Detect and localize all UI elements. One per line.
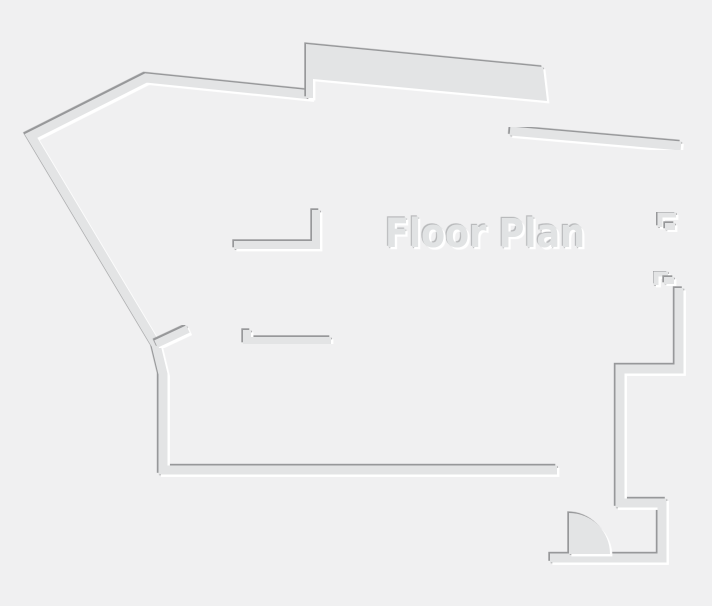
floor-plan-canvas: Floor Plan bbox=[0, 0, 712, 606]
floor-plan-title: Floor Plan bbox=[385, 211, 585, 257]
plan-background bbox=[0, 0, 712, 606]
right-opening-1-block bbox=[665, 223, 675, 230]
right-opening-2-block bbox=[664, 277, 674, 284]
floor-plan-page: Floor Plan bbox=[0, 0, 712, 606]
